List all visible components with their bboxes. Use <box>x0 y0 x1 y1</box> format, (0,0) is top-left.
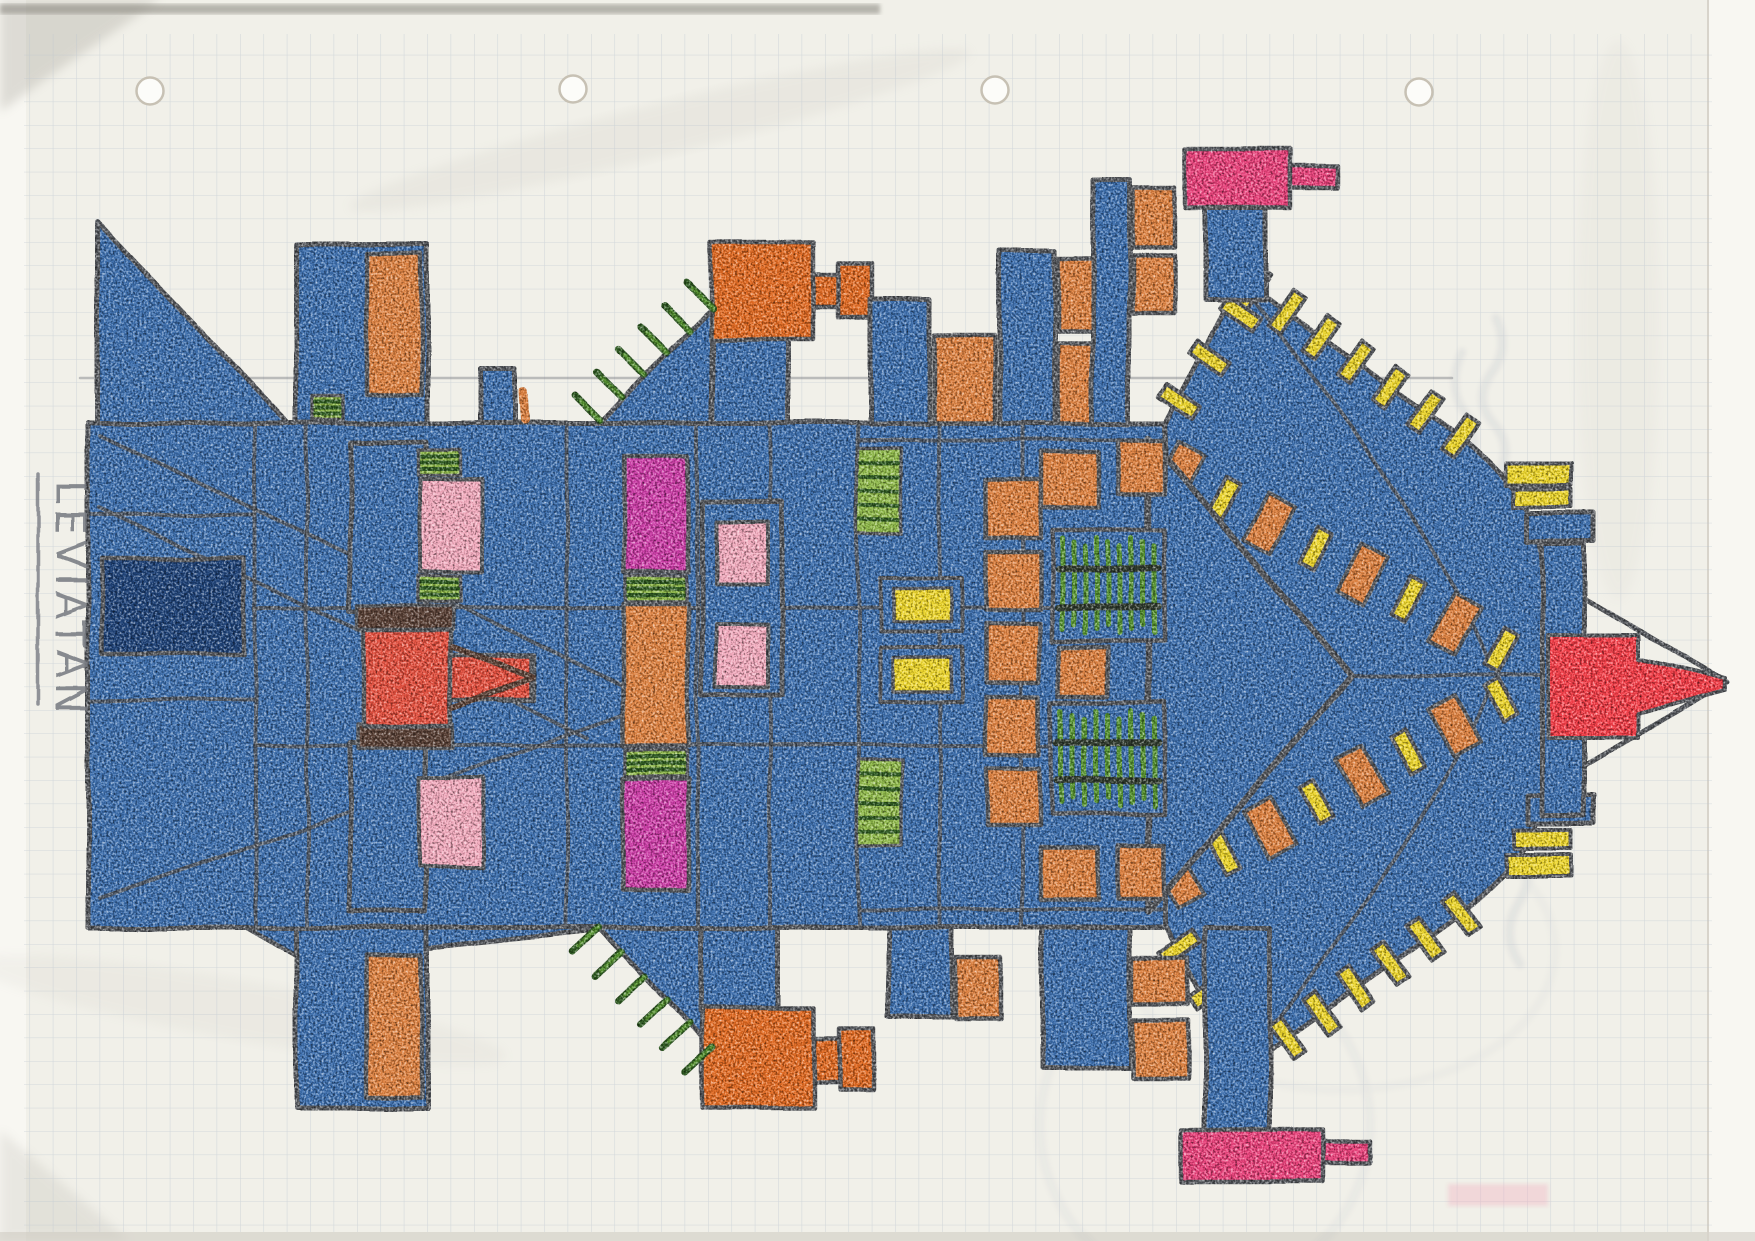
nose-fin-yellow <box>1506 464 1572 486</box>
orange-cell <box>624 604 688 746</box>
reactor-orange-block <box>1118 845 1164 899</box>
hull-panel <box>350 742 426 912</box>
turret-column <box>1205 928 1269 1132</box>
turret-mount <box>713 337 789 423</box>
orange-block <box>1132 256 1174 314</box>
orange-turret-muzzle <box>838 264 872 318</box>
orange-block <box>1132 188 1174 248</box>
mast-column <box>870 300 930 424</box>
left-margin <box>0 0 26 1241</box>
reactor-orange-block <box>986 552 1040 610</box>
punch-hole <box>982 77 1009 104</box>
leviatan-drawing: LEVIATAN <box>0 0 1755 1241</box>
scan-bottom-edge <box>0 1232 1755 1241</box>
punch-hole <box>560 76 587 103</box>
orange-turret-barrel <box>813 276 839 308</box>
cannon-frame <box>358 606 452 630</box>
mast-stub <box>480 368 514 423</box>
hull-panel <box>350 442 426 612</box>
mast-column <box>1093 180 1129 424</box>
reactor-orange-block <box>1040 848 1098 900</box>
turret-column <box>1205 208 1265 300</box>
punch-hole <box>1406 79 1433 106</box>
reactor-orange-block <box>1060 648 1108 696</box>
pink-window <box>716 624 768 688</box>
ship-title-group: LEVIATAN <box>38 474 95 719</box>
punch-hole <box>137 78 164 105</box>
magenta-cell <box>624 778 688 890</box>
scanned-drawing-page: LEVIATAN <box>0 0 1755 1241</box>
red-cannon-body <box>364 630 450 726</box>
turret-mount <box>700 928 778 1012</box>
reactor-orange-block <box>986 696 1040 754</box>
yellow-indicator <box>893 588 951 622</box>
pink-turret-barrel <box>1290 166 1338 188</box>
reactor-orange-block <box>986 624 1040 682</box>
nose-fin-yellow <box>1514 830 1572 848</box>
orange-block <box>1132 958 1188 1004</box>
reactor-orange-block <box>986 480 1040 538</box>
nose-fin-yellow <box>1506 854 1572 876</box>
orange-turret-bottom <box>702 1008 814 1108</box>
orange-block <box>955 958 1001 1018</box>
bleed-pink-smudge <box>1448 1184 1548 1206</box>
tail-window <box>102 558 244 654</box>
yellow-indicator <box>893 658 951 692</box>
tail-tower-orange <box>367 252 422 394</box>
reactor-orange-block <box>986 768 1040 826</box>
nose-fin-yellow <box>1514 490 1572 508</box>
pink-window <box>716 520 768 584</box>
orange-block <box>935 335 995 423</box>
pink-window <box>420 480 482 572</box>
orange-turret-top <box>711 243 813 339</box>
ship-title: LEVIATAN <box>46 480 95 719</box>
pink-turret-bottom <box>1182 1130 1322 1182</box>
orange-block <box>1132 1020 1188 1078</box>
pink-turret-barrel <box>1322 1142 1370 1164</box>
mast-column <box>888 928 952 1016</box>
orange-turret-muzzle <box>840 1028 874 1090</box>
right-margin <box>1708 0 1755 1241</box>
orange-tick <box>522 392 524 420</box>
magenta-cell <box>624 456 688 572</box>
nose-fin-blue <box>1528 514 1594 542</box>
orange-turret-barrel <box>814 1038 840 1082</box>
mast-column <box>1042 928 1130 1068</box>
reactor-orange-block <box>1118 440 1164 494</box>
tail-tower-orange <box>367 955 422 1097</box>
mast-column <box>1000 250 1055 424</box>
pink-turret-top <box>1185 150 1290 208</box>
pink-window <box>420 778 482 866</box>
reactor-orange-block <box>1040 452 1098 508</box>
